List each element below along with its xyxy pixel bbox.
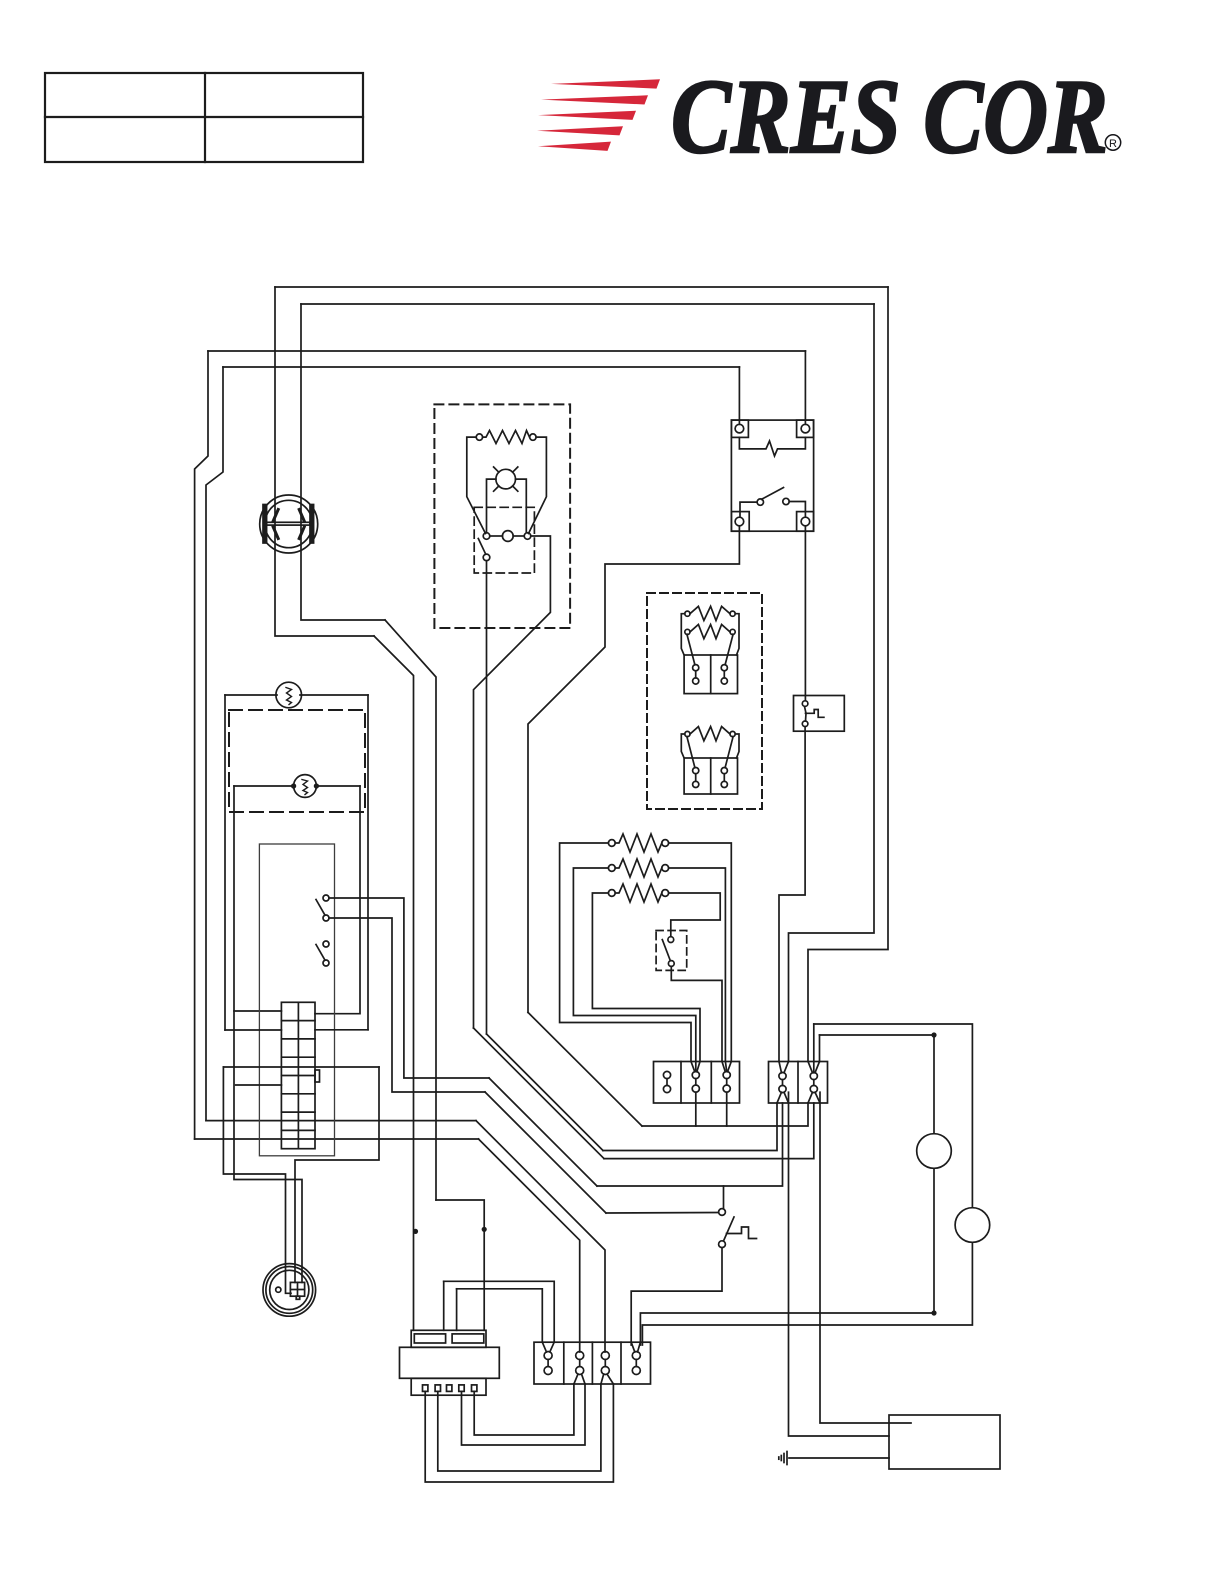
svg-text:CRES COR: CRES COR <box>671 58 1108 175</box>
svg-text:R: R <box>1109 138 1117 150</box>
